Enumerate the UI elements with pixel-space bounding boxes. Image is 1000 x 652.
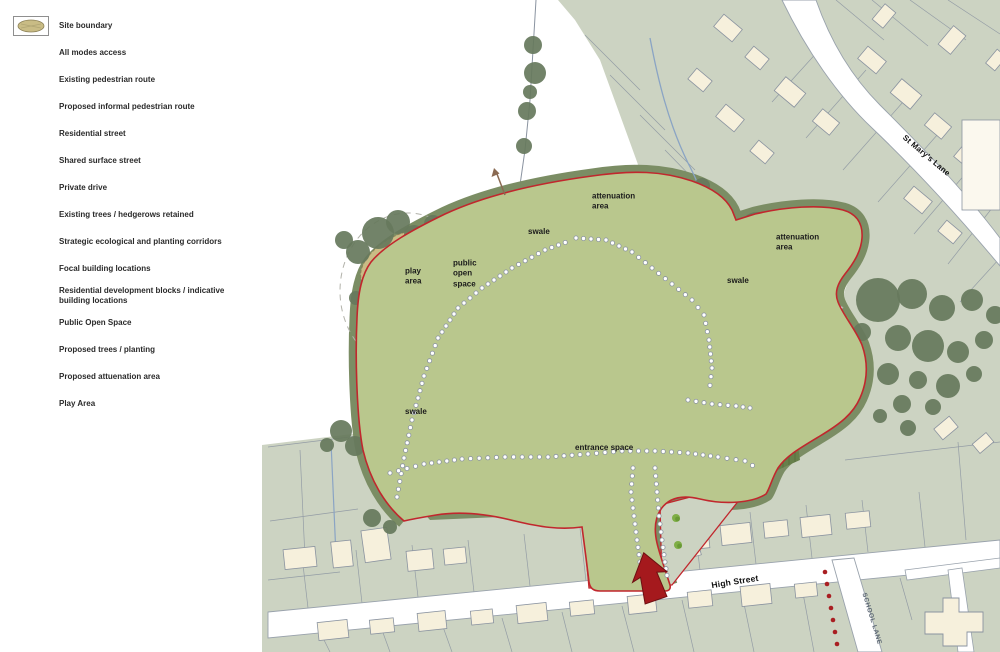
- existing-tree: [877, 363, 899, 385]
- legend-item: Focal building locations: [13, 259, 248, 279]
- legend-item: Public Open Space: [13, 313, 248, 333]
- existing-tree: [320, 438, 334, 452]
- legend-swatch-res-block: [13, 286, 49, 306]
- legend-item: Residential street: [13, 124, 248, 144]
- legend-item: Proposed informal pedestrian route: [13, 97, 248, 117]
- legend-label: Existing trees / hedgerows retained: [59, 210, 194, 220]
- legend-label: Proposed attuenation area: [59, 372, 160, 382]
- existing-tree: [961, 289, 983, 311]
- context-building: [763, 520, 789, 538]
- legend-label: Play Area: [59, 399, 95, 409]
- existing-tree: [893, 395, 911, 413]
- existing-tree: [929, 295, 955, 321]
- context-building: [720, 522, 752, 545]
- proposed-tree: [672, 514, 680, 522]
- legend-swatch-play-area: [13, 394, 49, 414]
- existing-tree: [936, 374, 960, 398]
- legend-swatch-existing-tree: [13, 205, 49, 225]
- legend-label: Site boundary: [59, 21, 112, 31]
- existing-tree: [524, 62, 546, 84]
- context-building: [740, 583, 772, 606]
- existing-tree: [885, 325, 911, 351]
- legend-swatch-fill: [13, 232, 49, 252]
- existing-tree: [856, 278, 900, 322]
- existing-tree: [363, 509, 381, 527]
- context-building: [406, 549, 434, 572]
- context-building: [687, 590, 713, 608]
- context-building: [800, 514, 832, 537]
- legend-item: Proposed trees / planting: [13, 340, 248, 360]
- legend-item: Play Area: [13, 394, 248, 414]
- context-building: [845, 511, 871, 529]
- legend-label: Strategic ecological and planting corrid…: [59, 237, 222, 247]
- site-plan-page: attenuation areaswaleplay areapublic ope…: [0, 0, 1000, 652]
- legend-label: Residential development blocks / indicat…: [59, 286, 248, 305]
- legend-swatch-focal: [13, 259, 49, 279]
- legend-label: Focal building locations: [59, 264, 151, 274]
- legend-item: Proposed attuenation area: [13, 367, 248, 387]
- legend-label: Proposed trees / planting: [59, 345, 155, 355]
- legend-label: Shared surface street: [59, 156, 141, 166]
- legend-label: Residential street: [59, 129, 126, 139]
- legend-swatch-attenuation: [13, 367, 49, 387]
- legend-swatch-fill: [13, 124, 49, 144]
- existing-tree: [335, 231, 353, 249]
- proposed-tree: [674, 541, 682, 549]
- existing-tree: [523, 85, 537, 99]
- legend-swatch-proposed-tree: [13, 340, 49, 360]
- existing-tree: [900, 420, 916, 436]
- context-building: [283, 546, 317, 569]
- legend-item: Existing trees / hedgerows retained: [13, 205, 248, 225]
- context-building: [417, 611, 447, 632]
- legend-swatch-fill-grid: [13, 313, 49, 333]
- existing-tree: [947, 341, 969, 363]
- legend-label: Existing pedestrian route: [59, 75, 155, 85]
- existing-tree: [897, 279, 927, 309]
- legend-swatch-fill: [13, 178, 49, 198]
- legend-swatch-all-modes-access: [13, 43, 49, 63]
- legend-item: Strategic ecological and planting corrid…: [13, 232, 248, 252]
- legend-label: Proposed informal pedestrian route: [59, 102, 195, 112]
- context-building: [317, 619, 349, 640]
- existing-tree: [524, 36, 542, 54]
- existing-tree: [912, 330, 944, 362]
- context-building: [516, 602, 548, 623]
- legend-swatch-proposed-ped: [13, 97, 49, 117]
- legend-item: Residential development blocks / indicat…: [13, 286, 248, 306]
- legend-label: Public Open Space: [59, 318, 131, 328]
- existing-tree: [975, 331, 993, 349]
- context-building: [443, 547, 467, 565]
- existing-tree: [925, 399, 941, 415]
- legend-item: Private drive: [13, 178, 248, 198]
- legend-swatch-fill: [13, 151, 49, 171]
- legend-item: Shared surface street: [13, 151, 248, 171]
- legend-item: All modes access: [13, 43, 248, 63]
- existing-tree: [966, 366, 982, 382]
- context-building: [470, 609, 493, 625]
- existing-tree: [518, 102, 536, 120]
- legend-swatch-existing-ped: [13, 70, 49, 90]
- context-building: [331, 540, 354, 568]
- legend: Site boundaryAll modes accessExisting pe…: [13, 16, 248, 414]
- existing-tree: [383, 520, 397, 534]
- context-plot: [962, 120, 1000, 210]
- context-building: [794, 582, 817, 598]
- existing-tree: [516, 138, 532, 154]
- context-building: [369, 618, 394, 634]
- existing-tree: [909, 371, 927, 389]
- legend-label: Private drive: [59, 183, 107, 193]
- legend-item: Existing pedestrian route: [13, 70, 248, 90]
- existing-tree: [873, 409, 887, 423]
- legend-label: All modes access: [59, 48, 126, 58]
- context-building: [569, 600, 594, 616]
